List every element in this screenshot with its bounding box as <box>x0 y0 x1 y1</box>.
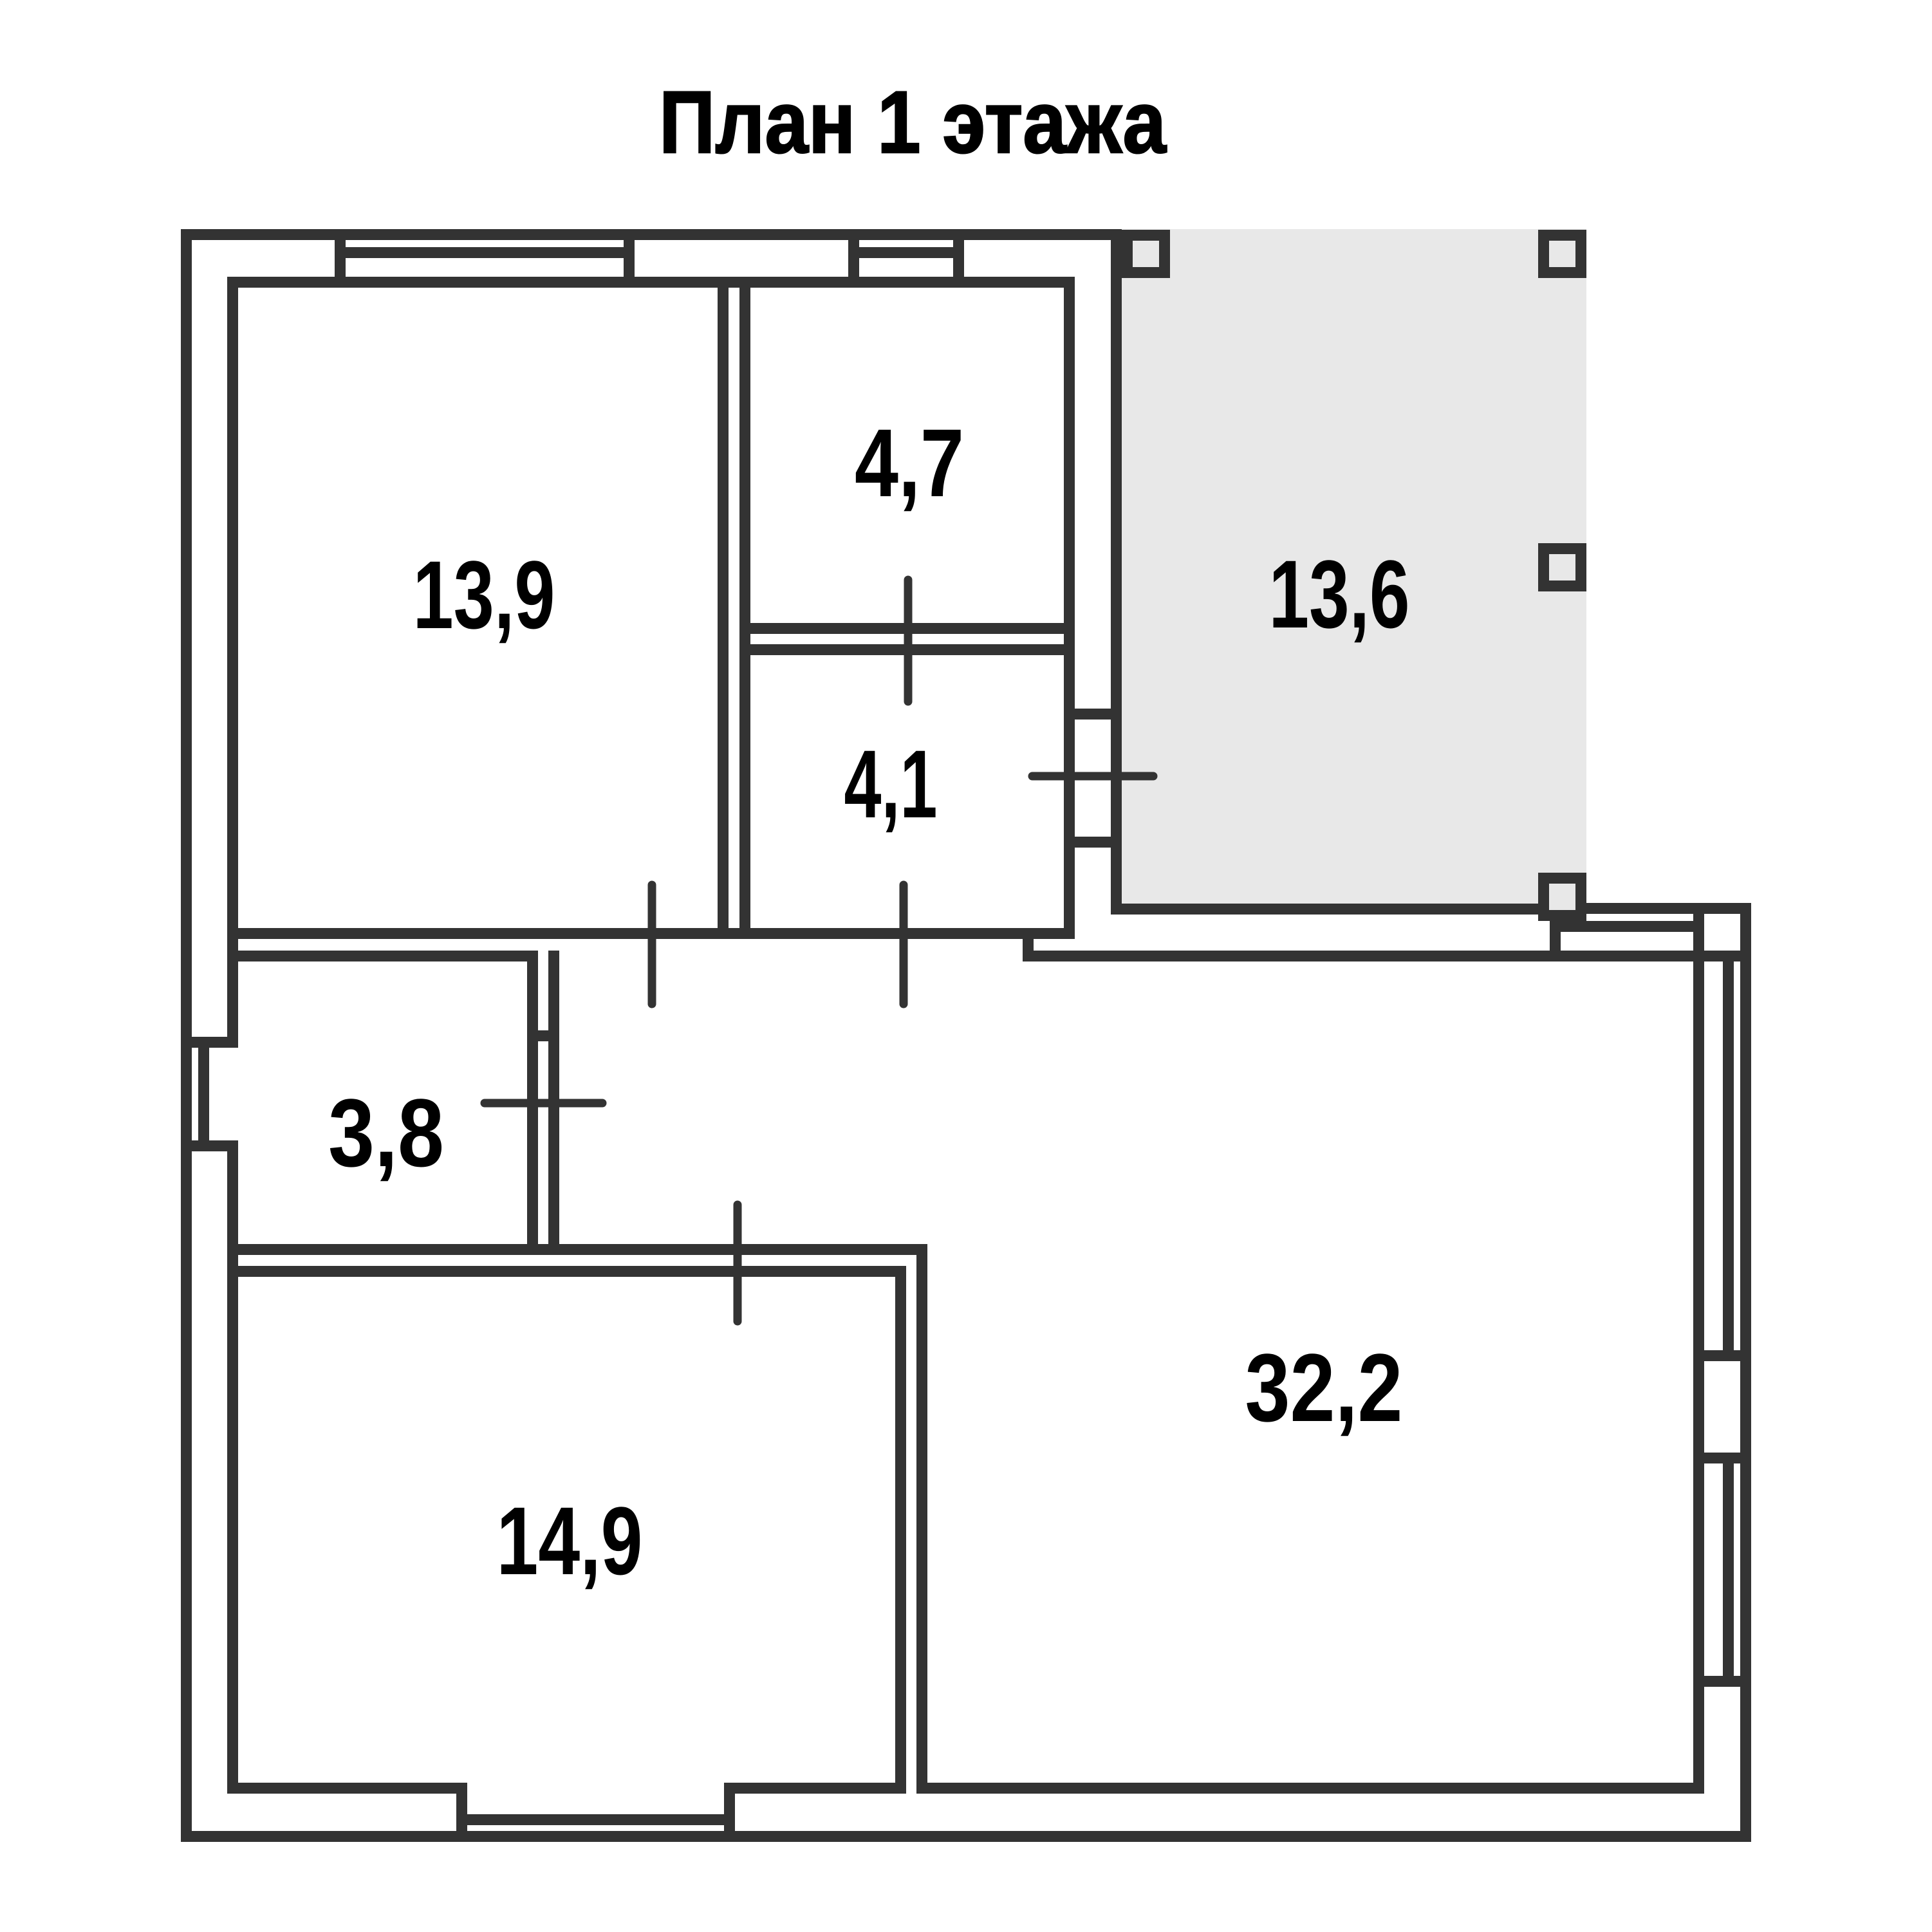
svg-text:13,9: 13,9 <box>413 541 555 649</box>
svg-text:32,2: 32,2 <box>1245 1333 1403 1442</box>
svg-text:План 1 этажа: План 1 этажа <box>659 73 1167 172</box>
svg-text:14,9: 14,9 <box>497 1487 643 1595</box>
svg-text:4,7: 4,7 <box>855 409 964 517</box>
svg-text:13,6: 13,6 <box>1269 540 1410 648</box>
svg-text:3,8: 3,8 <box>328 1079 444 1187</box>
svg-text:4,1: 4,1 <box>844 730 938 838</box>
